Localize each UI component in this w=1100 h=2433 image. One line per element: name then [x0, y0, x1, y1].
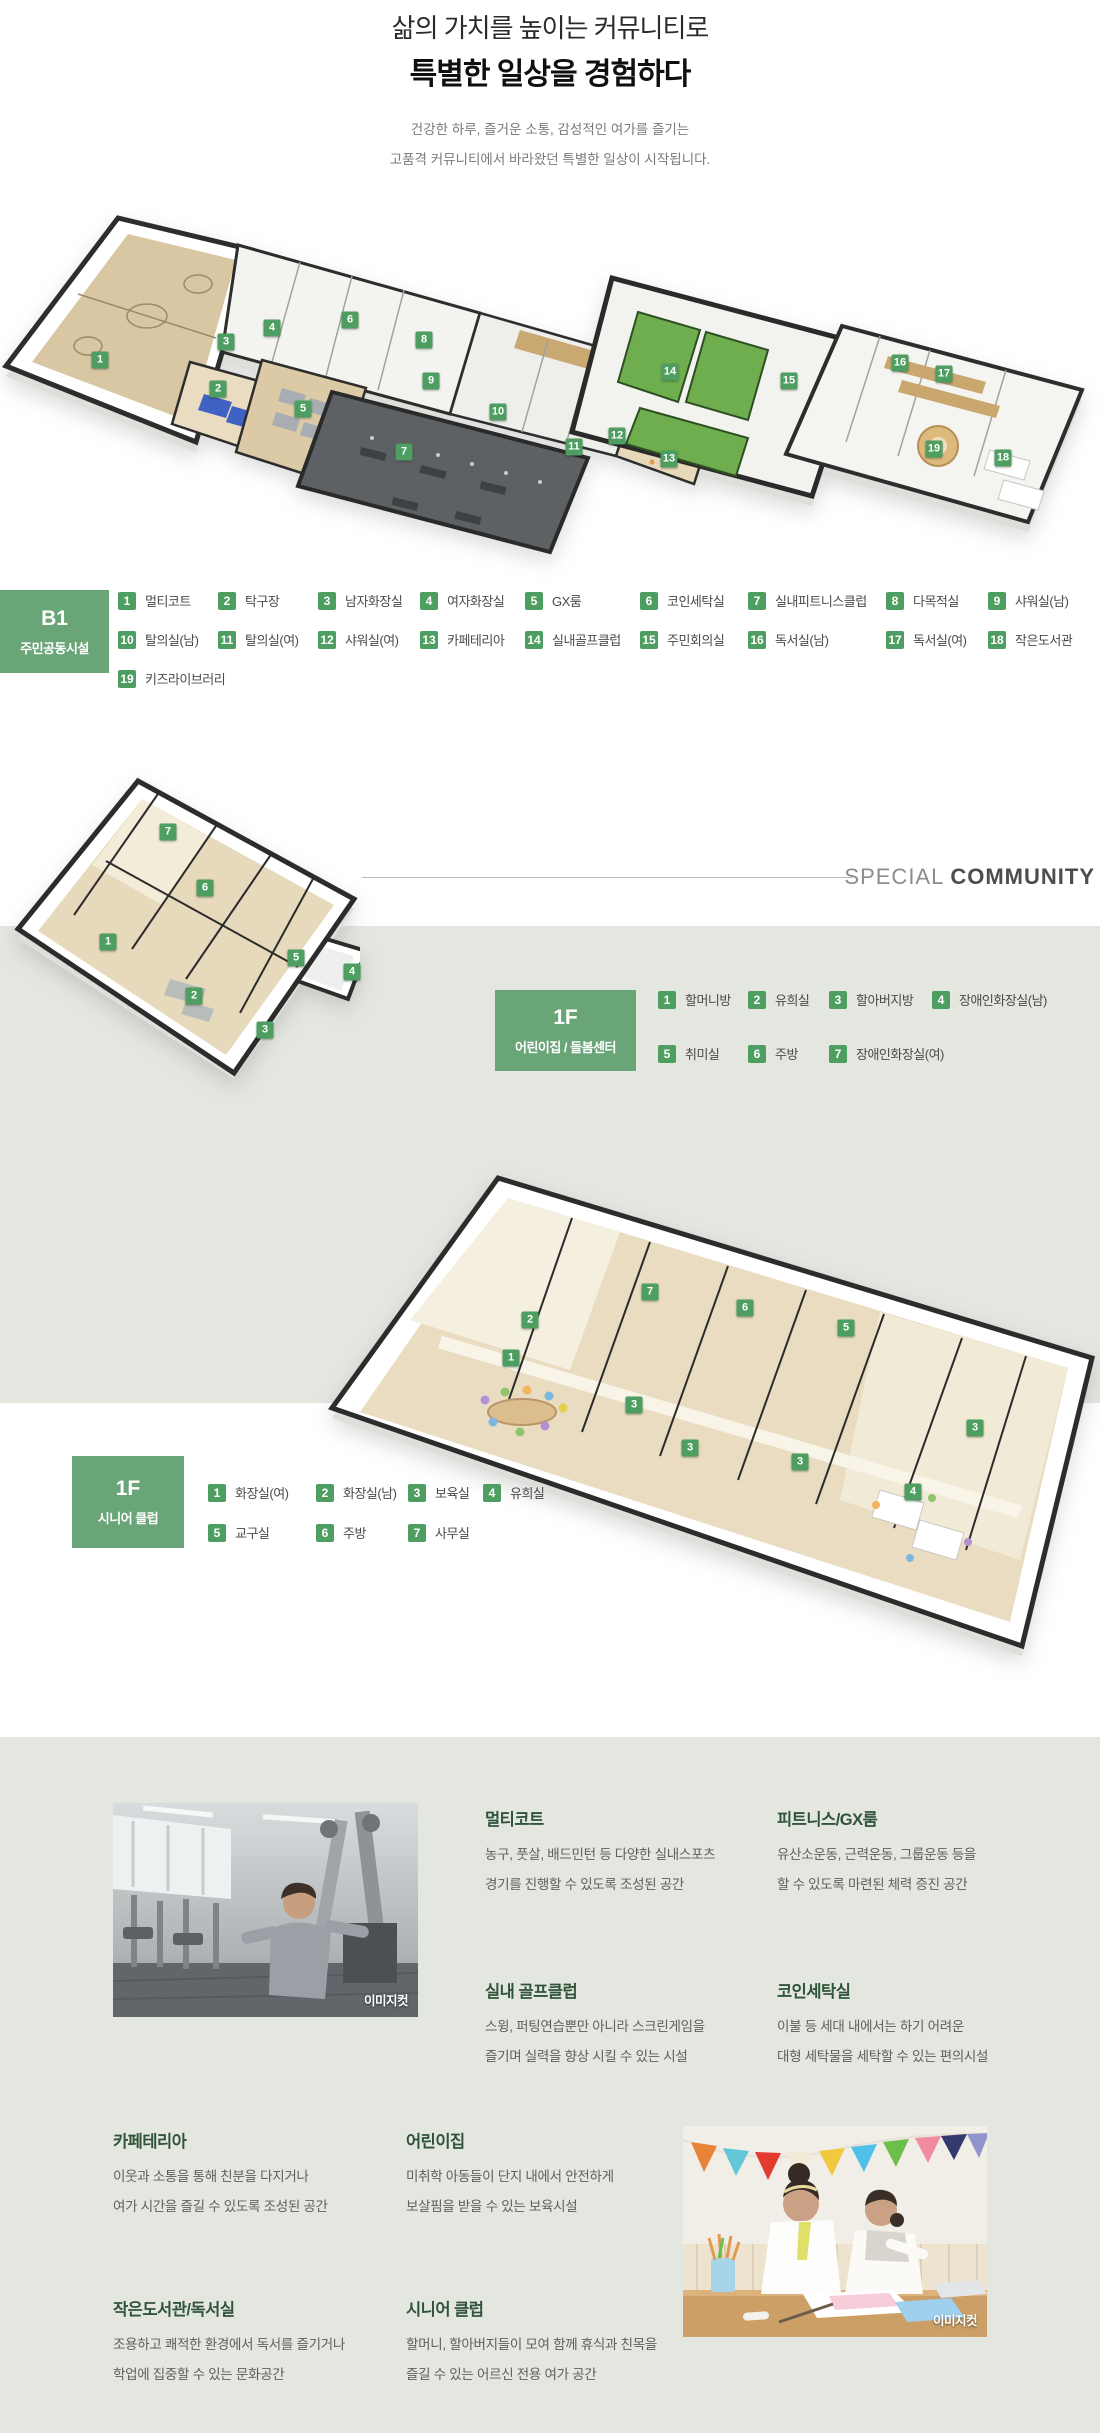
page-title-line2: 특별한 일상을 경험하다	[0, 49, 1100, 93]
legend-number-badge: 10	[118, 631, 136, 649]
legend-number-badge: 3	[829, 991, 847, 1009]
legend-number-badge: 13	[420, 631, 438, 649]
feature-description-line: 보살핌을 받을 수 있는 보육시설	[406, 2192, 706, 2222]
legend-item-senior-6: 6주방	[316, 1523, 366, 1542]
legend-number-badge: 6	[748, 1045, 766, 1063]
legend-item-label: 취미실	[685, 1044, 719, 1063]
feature-block: 실내 골프클럽스윙, 퍼팅연습뿐만 아니라 스크린게임을즐기며 실력을 향상 시…	[485, 1978, 785, 2072]
feature-description: 농구, 풋살, 배드민턴 등 다양한 실내스포츠경기를 진행할 수 있도록 조성…	[485, 1840, 785, 1900]
legend-item-daycare-5: 5취미실	[658, 1044, 719, 1063]
legend-number-badge: 7	[408, 1524, 426, 1542]
feature-block: 피트니스/GX룸유산소운동, 근력운동, 그룹운동 등을할 수 있도록 마련된 …	[777, 1806, 1077, 1900]
feature-description-line: 유산소운동, 근력운동, 그룹운동 등을	[777, 1840, 1077, 1870]
plan-marker-senior-1: 1	[503, 1350, 520, 1367]
plan-marker-b1-10: 10	[490, 404, 507, 421]
legend-item-label: 실내피트니스클럽	[775, 591, 867, 610]
legend-item-label: 다목적실	[913, 591, 959, 610]
legend-item-daycare-4: 4장애인화장실(남)	[932, 990, 1047, 1009]
feature-description-line: 즐기며 실력을 향상 시킬 수 있는 시설	[485, 2042, 785, 2072]
legend-item-label: 유희실	[510, 1483, 544, 1502]
plan-marker-senior-2: 2	[522, 1312, 539, 1329]
legend-item-senior-5: 5교구실	[208, 1523, 269, 1542]
legend-item-b1-8: 8다목적실	[886, 591, 959, 610]
plan-marker-b1-8: 8	[416, 332, 433, 349]
legend-item-label: 샤워실(여)	[345, 630, 399, 649]
page-title-line1: 삶의 가치를 높이는 커뮤니티로	[0, 0, 1100, 45]
legend-number-badge: 5	[658, 1045, 676, 1063]
plan-marker-daycare-2: 2	[186, 988, 203, 1005]
legend-box-senior: 1F시니어 클럽	[72, 1456, 184, 1548]
feature-description: 유산소운동, 근력운동, 그룹운동 등을할 수 있도록 마련된 체력 증진 공간	[777, 1840, 1077, 1900]
legend-floor-label: 1F	[553, 1006, 578, 1030]
legend-item-b1-7: 7실내피트니스클럽	[748, 591, 867, 610]
feature-description: 스윙, 퍼팅연습뿐만 아니라 스크린게임을즐기며 실력을 향상 시킬 수 있는 …	[485, 2012, 785, 2072]
plan-marker-daycare-6: 6	[197, 880, 214, 897]
image-cut-caption: 이미지컷	[364, 1990, 408, 2009]
legend-number-badge: 19	[118, 670, 136, 688]
plan-marker-senior-5: 5	[838, 1320, 855, 1337]
legend-number-badge: 14	[525, 631, 543, 649]
gym-photo: 이미지컷	[113, 1803, 418, 2017]
feature-block: 코인세탁실이불 등 세대 내에서는 하기 어려운대형 세탁물을 세탁할 수 있는…	[777, 1978, 1077, 2072]
legend-number-badge: 2	[748, 991, 766, 1009]
legend-item-senior-4: 4유희실	[483, 1483, 544, 1502]
hero-section: 삶의 가치를 높이는 커뮤니티로 특별한 일상을 경험하다 건강한 하루, 즐거…	[0, 0, 1100, 175]
feature-block: 멀티코트농구, 풋살, 배드민턴 등 다양한 실내스포츠경기를 진행할 수 있도…	[485, 1806, 785, 1900]
feature-description-line: 학업에 집중할 수 있는 문화공간	[113, 2360, 413, 2390]
legend-item-b1-13: 13카페테리아	[420, 630, 504, 649]
legend-item-label: 탈의실(여)	[245, 630, 299, 649]
legend-item-b1-15: 15주민회의실	[640, 630, 724, 649]
legend-number-badge: 5	[208, 1524, 226, 1542]
feature-title: 작은도서관/독서실	[113, 2296, 413, 2320]
legend-box-daycare: 1F어린이집 / 돌봄센터	[495, 990, 636, 1071]
feature-description-line: 할머니, 할아버지들이 모여 함께 휴식과 친목을	[406, 2330, 706, 2360]
legend-item-label: 보육실	[435, 1483, 469, 1502]
feature-title: 실내 골프클럽	[485, 1978, 785, 2002]
legend-item-label: 탁구장	[245, 591, 279, 610]
legend-item-label: 실내골프클럽	[552, 630, 621, 649]
legend-item-b1-9: 9샤워실(남)	[988, 591, 1069, 610]
legend-number-badge: 9	[988, 592, 1006, 610]
legend-item-label: 주민회의실	[667, 630, 724, 649]
legend-number-badge: 18	[988, 631, 1006, 649]
feature-description-line: 조용하고 쾌적한 환경에서 독서를 즐기거나	[113, 2330, 413, 2360]
legend-box-b1: B1주민공동시설	[0, 590, 109, 673]
legend-item-b1-11: 11탈의실(여)	[218, 630, 299, 649]
gym-photo-art	[113, 1803, 418, 2017]
legend-item-label: 코인세탁실	[667, 591, 724, 610]
legend-number-badge: 7	[829, 1045, 847, 1063]
feature-description-line: 이불 등 세대 내에서는 하기 어려운	[777, 2012, 1077, 2042]
feature-description-line: 여가 시간을 즐길 수 있도록 조성된 공간	[113, 2192, 413, 2222]
daycare-photo: 이미지컷	[683, 2126, 987, 2337]
legend-item-b1-12: 12샤워실(여)	[318, 630, 399, 649]
plan-marker-b1-1: 1	[92, 352, 109, 369]
feature-title: 어린이집	[406, 2128, 706, 2152]
legend-number-badge: 17	[886, 631, 904, 649]
legend-item-label: 주방	[343, 1523, 366, 1542]
legend-number-badge: 2	[316, 1484, 334, 1502]
legend-section-title: 어린이집 / 돌봄센터	[515, 1037, 616, 1056]
plan-marker-b1-3: 3	[218, 334, 235, 351]
legend-item-label: 독서실(여)	[913, 630, 967, 649]
legend-number-badge: 11	[218, 631, 236, 649]
feature-description-line: 농구, 풋살, 배드민턴 등 다양한 실내스포츠	[485, 1840, 785, 1870]
plan-marker-daycare-4: 4	[344, 964, 361, 981]
plan-marker-daycare-5: 5	[288, 950, 305, 967]
legend-item-label: 장애인화장실(여)	[856, 1044, 944, 1063]
plan-marker-b1-17: 17	[936, 366, 953, 383]
image-cut-caption: 이미지컷	[933, 2310, 977, 2329]
plan-marker-b1-12: 12	[609, 428, 626, 445]
legend-number-badge: 4	[420, 592, 438, 610]
legend-item-senior-7: 7사무실	[408, 1523, 469, 1542]
daycare-photo-art	[683, 2126, 987, 2337]
plan-marker-b1-2: 2	[210, 381, 227, 398]
feature-block: 어린이집미취학 아동들이 단지 내에서 안전하게보살핌을 받을 수 있는 보육시…	[406, 2128, 706, 2222]
feature-description: 할머니, 할아버지들이 모여 함께 휴식과 친목을즐길 수 있는 어르신 전용 …	[406, 2330, 706, 2390]
legend-item-b1-4: 4여자화장실	[420, 591, 504, 610]
legend-number-badge: 5	[525, 592, 543, 610]
community-page: 삶의 가치를 높이는 커뮤니티로 특별한 일상을 경험하다 건강한 하루, 즐거…	[0, 0, 1100, 2433]
legend-floor-label: B1	[41, 607, 68, 631]
legend-item-label: 할아버지방	[856, 990, 913, 1009]
page-subtitle-line2: 고품격 커뮤니티에서 바라왔던 특별한 일상이 시작됩니다.	[0, 145, 1100, 175]
legend-item-label: 할머니방	[685, 990, 731, 1009]
legend-item-daycare-3: 3할아버지방	[829, 990, 913, 1009]
special-label-bold: COMMUNITY	[950, 864, 1095, 889]
legend-item-label: GX룸	[552, 591, 581, 610]
legend-item-senior-2: 2화장실(남)	[316, 1483, 397, 1502]
feature-description-line: 미취학 아동들이 단지 내에서 안전하게	[406, 2162, 706, 2192]
legend-item-daycare-6: 6주방	[748, 1044, 798, 1063]
legend-item-label: 키즈라이브러리	[145, 669, 225, 688]
feature-description: 조용하고 쾌적한 환경에서 독서를 즐기거나학업에 집중할 수 있는 문화공간	[113, 2330, 413, 2390]
legend-section-title: 시니어 클럽	[98, 1508, 158, 1527]
plan-marker-b1-5: 5	[295, 401, 312, 418]
legend-item-label: 사무실	[435, 1523, 469, 1542]
plan-marker-senior-3: 3	[626, 1397, 643, 1414]
legend-section-title: 주민공동시설	[20, 638, 89, 657]
plan-marker-b1-19: 19	[926, 441, 943, 458]
feature-description-line: 스윙, 퍼팅연습뿐만 아니라 스크린게임을	[485, 2012, 785, 2042]
legend-floor-label: 1F	[116, 1477, 141, 1501]
legend-number-badge: 15	[640, 631, 658, 649]
plan-marker-b1-16: 16	[892, 355, 909, 372]
legend-number-badge: 3	[318, 592, 336, 610]
feature-title: 멀티코트	[485, 1806, 785, 1830]
legend-item-label: 유희실	[775, 990, 809, 1009]
plan-marker-daycare-3: 3	[257, 1022, 274, 1039]
feature-description-line: 경기를 진행할 수 있도록 조성된 공간	[485, 1870, 785, 1900]
legend-item-daycare-7: 7장애인화장실(여)	[829, 1044, 944, 1063]
legend-number-badge: 7	[748, 592, 766, 610]
legend-number-badge: 1	[658, 991, 676, 1009]
legend-item-label: 작은도서관	[1015, 630, 1072, 649]
plan-marker-senior-7: 7	[642, 1284, 659, 1301]
legend-item-b1-6: 6코인세탁실	[640, 591, 724, 610]
plan-marker-b1-9: 9	[423, 373, 440, 390]
plan-marker-b1-15: 15	[781, 373, 798, 390]
legend-item-b1-19: 19키즈라이브러리	[118, 669, 225, 688]
plan-marker-senior-3: 3	[967, 1420, 984, 1437]
plan-marker-b1-7: 7	[396, 444, 413, 461]
legend-number-badge: 12	[318, 631, 336, 649]
b1-floor-plan	[0, 150, 1100, 570]
plan-marker-b1-18: 18	[995, 450, 1012, 467]
legend-item-b1-10: 10탈의실(남)	[118, 630, 199, 649]
legend-number-badge: 4	[932, 991, 950, 1009]
special-divider-line	[362, 877, 852, 878]
plan-marker-b1-6: 6	[342, 312, 359, 329]
plan-marker-senior-3: 3	[682, 1440, 699, 1457]
legend-item-label: 교구실	[235, 1523, 269, 1542]
legend-item-label: 독서실(남)	[775, 630, 829, 649]
legend-item-b1-3: 3남자화장실	[318, 591, 402, 610]
legend-item-label: 탈의실(남)	[145, 630, 199, 649]
feature-description: 이웃과 소통을 통해 친분을 다지거나여가 시간을 즐길 수 있도록 조성된 공…	[113, 2162, 413, 2222]
plan-marker-b1-11: 11	[566, 439, 583, 456]
feature-description-line: 할 수 있도록 마련된 체력 증진 공간	[777, 1870, 1077, 1900]
legend-item-daycare-2: 2유희실	[748, 990, 809, 1009]
legend-item-b1-14: 14실내골프클럽	[525, 630, 621, 649]
feature-block: 작은도서관/독서실조용하고 쾌적한 환경에서 독서를 즐기거나학업에 집중할 수…	[113, 2296, 413, 2390]
legend-item-senior-1: 1화장실(여)	[208, 1483, 289, 1502]
plan-marker-senior-6: 6	[737, 1300, 754, 1317]
legend-number-badge: 8	[886, 592, 904, 610]
legend-number-badge: 1	[208, 1484, 226, 1502]
feature-description-line: 대형 세탁물을 세탁할 수 있는 편의시설	[777, 2042, 1077, 2072]
feature-block: 카페테리아이웃과 소통을 통해 친분을 다지거나여가 시간을 즐길 수 있도록 …	[113, 2128, 413, 2222]
legend-item-b1-5: 5GX룸	[525, 591, 581, 610]
legend-item-senior-3: 3보육실	[408, 1483, 469, 1502]
feature-description-line: 즐길 수 있는 어르신 전용 여가 공간	[406, 2360, 706, 2390]
legend-item-label: 멀티코트	[145, 591, 191, 610]
feature-title: 피트니스/GX룸	[777, 1806, 1077, 1830]
plan-marker-b1-14: 14	[662, 364, 679, 381]
legend-item-label: 카페테리아	[447, 630, 504, 649]
legend-item-b1-16: 16독서실(남)	[748, 630, 829, 649]
plan-marker-daycare-1: 1	[100, 934, 117, 951]
legend-number-badge: 2	[218, 592, 236, 610]
feature-description: 이불 등 세대 내에서는 하기 어려운대형 세탁물을 세탁할 수 있는 편의시설	[777, 2012, 1077, 2072]
legend-item-b1-17: 17독서실(여)	[886, 630, 967, 649]
legend-number-badge: 16	[748, 631, 766, 649]
feature-block: 시니어 클럽할머니, 할아버지들이 모여 함께 휴식과 친목을즐길 수 있는 어…	[406, 2296, 706, 2390]
legend-number-badge: 6	[640, 592, 658, 610]
legend-item-b1-1: 1멀티코트	[118, 591, 191, 610]
legend-item-b1-18: 18작은도서관	[988, 630, 1072, 649]
feature-title: 시니어 클럽	[406, 2296, 706, 2320]
legend-item-label: 주방	[775, 1044, 798, 1063]
plan-marker-b1-13: 13	[661, 451, 678, 468]
page-subtitle-line1: 건강한 하루, 즐거운 소통, 감성적인 여가를 즐기는	[0, 115, 1100, 145]
legend-number-badge: 3	[408, 1484, 426, 1502]
legend-item-label: 화장실(남)	[343, 1483, 397, 1502]
legend-number-badge: 6	[316, 1524, 334, 1542]
legend-item-label: 장애인화장실(남)	[959, 990, 1047, 1009]
legend-number-badge: 1	[118, 592, 136, 610]
feature-title: 코인세탁실	[777, 1978, 1077, 2002]
legend-item-label: 화장실(여)	[235, 1483, 289, 1502]
legend-number-badge: 4	[483, 1484, 501, 1502]
feature-description-line: 이웃과 소통을 통해 친분을 다지거나	[113, 2162, 413, 2192]
plan-marker-daycare-7: 7	[160, 824, 177, 841]
legend-item-label: 남자화장실	[345, 591, 402, 610]
feature-description: 미취학 아동들이 단지 내에서 안전하게보살핌을 받을 수 있는 보육시설	[406, 2162, 706, 2222]
legend-item-b1-2: 2탁구장	[218, 591, 279, 610]
legend-item-daycare-1: 1할머니방	[658, 990, 731, 1009]
legend-item-label: 샤워실(남)	[1015, 591, 1069, 610]
plan-marker-senior-3: 3	[792, 1454, 809, 1471]
plan-marker-senior-4: 4	[905, 1484, 922, 1501]
special-label-light: SPECIAL	[844, 864, 944, 889]
special-community-label: SPECIALCOMMUNITY	[844, 864, 1095, 890]
plan-marker-b1-4: 4	[264, 320, 281, 337]
legend-item-label: 여자화장실	[447, 591, 504, 610]
feature-title: 카페테리아	[113, 2128, 413, 2152]
